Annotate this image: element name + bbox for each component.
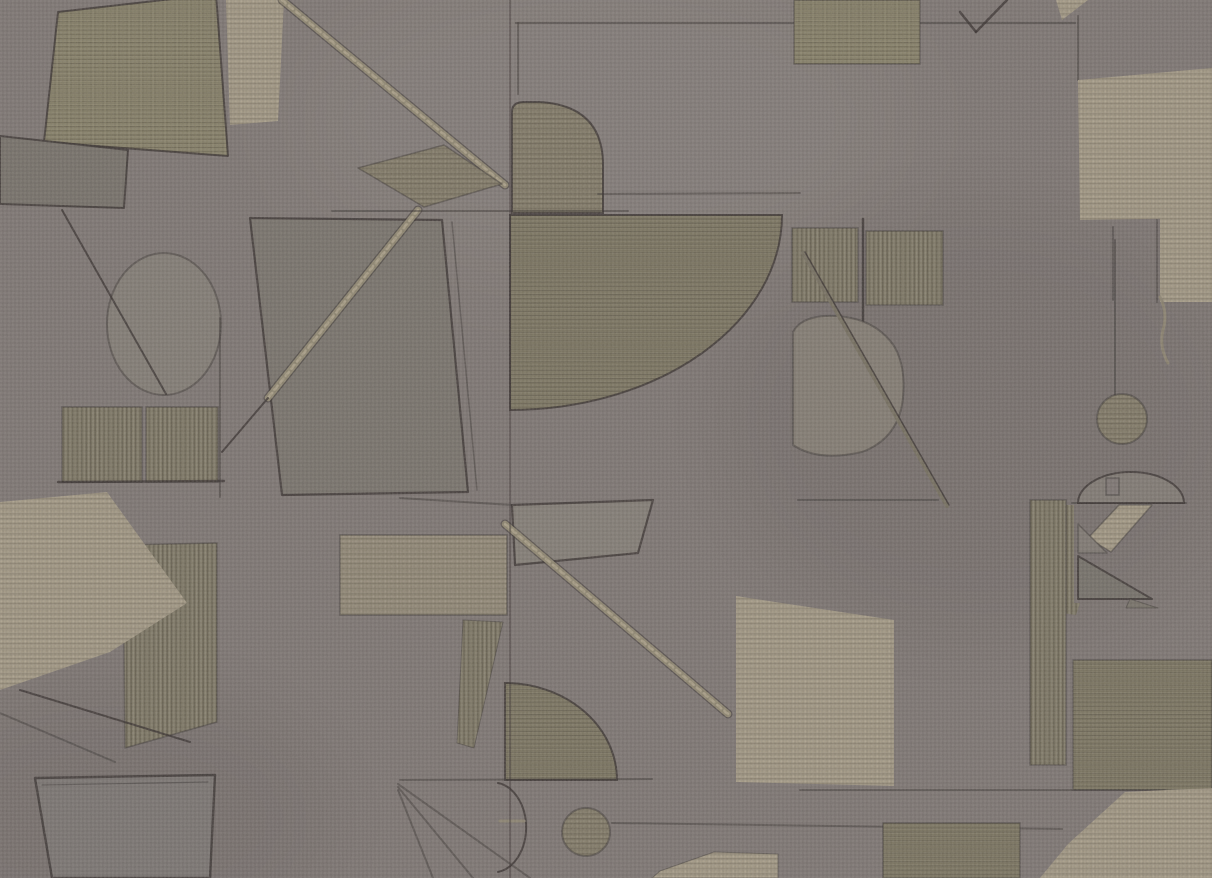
wallpaper-canvas (0, 0, 1212, 878)
textile-pattern-svg (0, 0, 1212, 878)
grain-overlay (0, 0, 1212, 878)
